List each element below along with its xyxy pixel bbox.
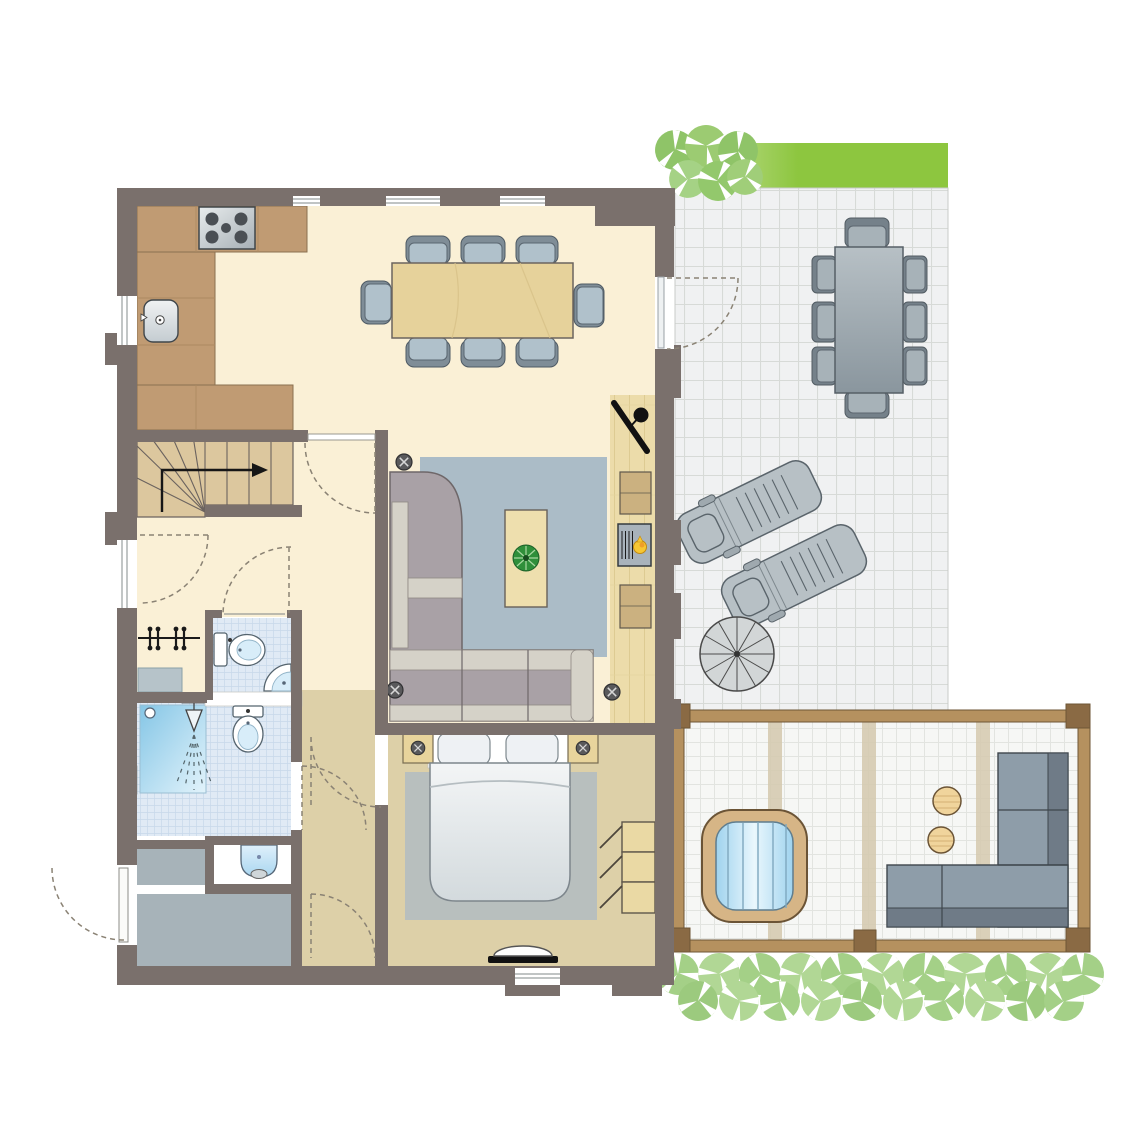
outdoor-chair bbox=[812, 256, 836, 293]
pillow bbox=[506, 733, 558, 765]
dining-chair bbox=[461, 338, 505, 367]
corridor-floor bbox=[302, 617, 375, 690]
dining-chair bbox=[516, 236, 558, 264]
dining-table bbox=[392, 263, 573, 338]
outdoor-chair bbox=[903, 347, 927, 385]
shrub-row bbox=[654, 944, 1106, 1029]
wellness-veranda bbox=[654, 704, 1106, 1029]
outdoor-chair bbox=[903, 302, 927, 342]
coffee-table bbox=[505, 510, 547, 607]
storage-floor bbox=[137, 849, 205, 885]
side-table bbox=[928, 827, 954, 853]
kitchen-counter-bottom bbox=[137, 385, 293, 430]
ceiling-spotlight bbox=[396, 454, 412, 470]
kitchen-sink bbox=[141, 300, 178, 342]
reading-spotlight bbox=[576, 741, 590, 755]
staircase bbox=[137, 436, 293, 517]
dining-chair bbox=[361, 281, 391, 324]
wall-living-bedroom bbox=[375, 723, 655, 735]
terrace bbox=[651, 122, 948, 712]
wall-kitchen-hall bbox=[137, 430, 308, 442]
storage-floor bbox=[137, 894, 302, 966]
cistern-shelf bbox=[205, 692, 302, 706]
wc-toilet bbox=[214, 633, 265, 666]
reading-spotlight bbox=[411, 741, 425, 755]
hot-tub bbox=[702, 810, 807, 922]
terrace-door bbox=[655, 277, 674, 349]
shower bbox=[140, 698, 212, 793]
ceiling-spotlight bbox=[387, 682, 403, 698]
outdoor-chair bbox=[845, 218, 889, 249]
wall-hall-living bbox=[375, 430, 388, 730]
floor-plan bbox=[0, 0, 1145, 1145]
outdoor-chair bbox=[812, 302, 836, 342]
bath-toilet bbox=[233, 706, 263, 752]
entrance-door-swing bbox=[52, 868, 124, 940]
double-bed bbox=[430, 763, 570, 901]
cabinet bbox=[620, 585, 651, 628]
spiral-staircase bbox=[700, 617, 774, 691]
dining-chair bbox=[461, 236, 505, 264]
floor-plan-canvas bbox=[0, 0, 1145, 1145]
dining-chair bbox=[574, 284, 604, 327]
outdoor-chair bbox=[845, 391, 889, 418]
utility-niche bbox=[138, 668, 182, 692]
dining-chair bbox=[516, 338, 558, 367]
pillow bbox=[438, 733, 490, 765]
washbasin bbox=[241, 845, 277, 879]
outdoor-chair bbox=[812, 347, 836, 385]
dining-chair bbox=[406, 338, 450, 367]
cooktop bbox=[199, 207, 255, 249]
side-table bbox=[933, 787, 961, 815]
outdoor-chair bbox=[903, 256, 927, 293]
ceiling-spotlight bbox=[604, 684, 620, 700]
entrance-door bbox=[117, 865, 137, 945]
sliding-door bbox=[308, 434, 375, 440]
dining-chair bbox=[406, 236, 450, 264]
wall-bedroom-corridor bbox=[375, 805, 388, 966]
bedroom-corridor-floor bbox=[302, 690, 375, 966]
outdoor-dining-table bbox=[835, 247, 903, 393]
plant bbox=[513, 545, 539, 571]
fireplace bbox=[618, 524, 651, 566]
